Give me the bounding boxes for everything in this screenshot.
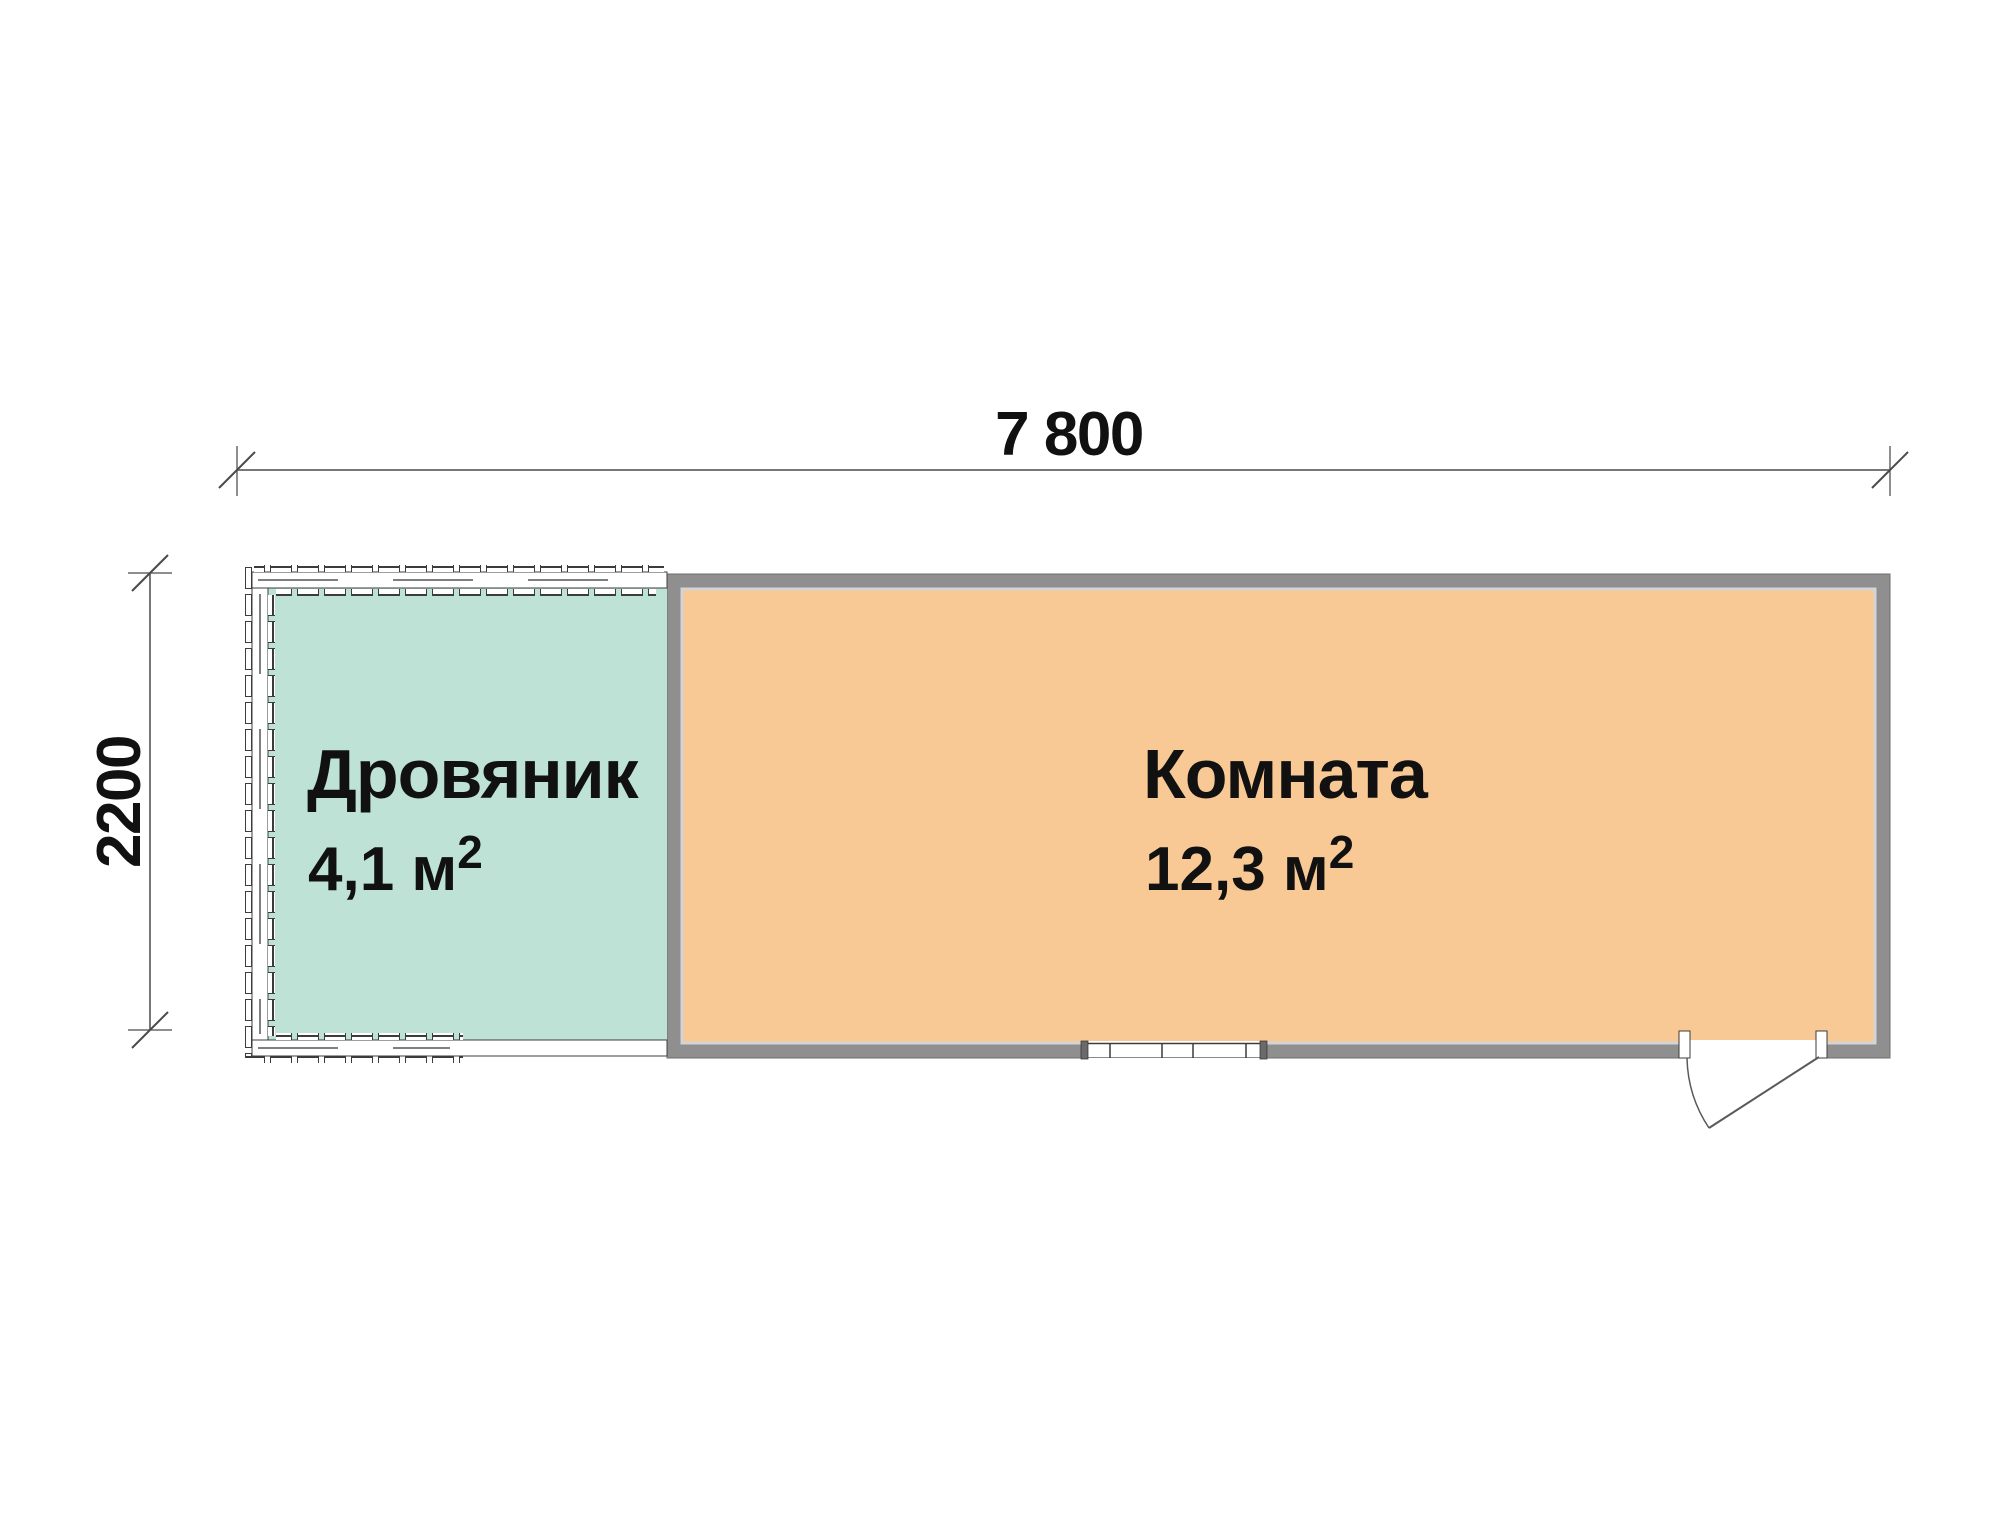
entrance-door-swing	[1679, 1031, 1827, 1128]
living-room-area-sup: 2	[1329, 826, 1355, 878]
floor-plan-svg: 7 800 2200 Дровяник 4,1 м2 Комната 12,3 …	[0, 0, 2000, 1538]
door-jamb-right	[1816, 1031, 1827, 1058]
dimension-height-label: 2200	[85, 736, 154, 868]
living-room-area-value: 12,3 м	[1145, 835, 1329, 904]
cladding-top-inner	[276, 589, 656, 596]
dimension-height: 2200	[85, 555, 172, 1048]
woodshed-floor	[268, 588, 667, 1040]
window-post-right	[1260, 1041, 1267, 1059]
woodshed-area-value: 4,1 м	[308, 835, 457, 904]
door-gap	[1690, 1040, 1816, 1060]
cladding-left-outer	[245, 565, 252, 1063]
living-room-area: 12,3 м2	[1145, 826, 1354, 904]
cladding-left-inner	[268, 595, 275, 1036]
woodshed-room	[245, 565, 667, 1063]
door-jamb-left	[1679, 1031, 1690, 1058]
woodshed-area: 4,1 м2	[308, 826, 483, 904]
cladding-top-outer	[254, 565, 664, 572]
living-room-floor	[682, 589, 1875, 1043]
dimension-width: 7 800	[219, 400, 1908, 496]
woodshed-area-sup: 2	[457, 826, 483, 878]
cladding-bottom-inner	[276, 1033, 463, 1040]
living-room-label: Комната	[1143, 735, 1429, 813]
window-post-left	[1081, 1041, 1088, 1059]
floor-plan-canvas: 7 800 2200 Дровяник 4,1 м2 Комната 12,3 …	[0, 0, 2000, 1538]
woodshed-label: Дровяник	[307, 735, 640, 813]
dimension-width-label: 7 800	[995, 400, 1143, 469]
cladding-bottom-outer	[245, 1056, 463, 1063]
door-leaf	[1709, 1057, 1819, 1128]
window-opening	[1081, 1041, 1267, 1059]
door-swing-arc	[1687, 1058, 1709, 1128]
living-room	[667, 574, 1890, 1058]
